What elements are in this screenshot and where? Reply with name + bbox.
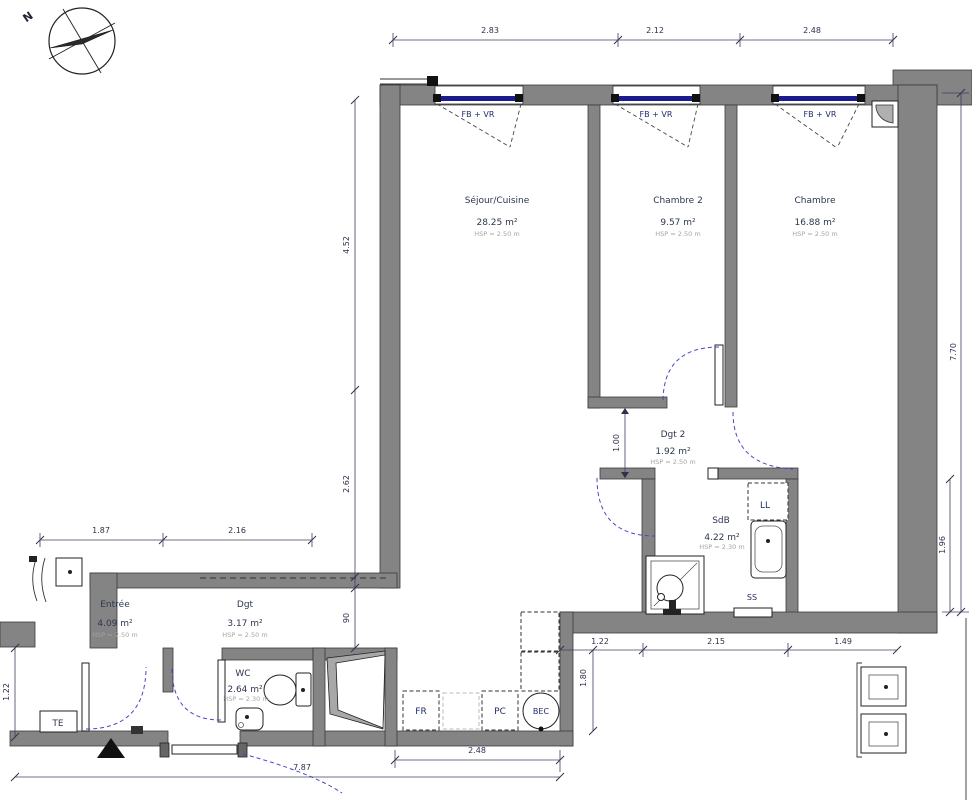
wall-corridor-bottom-left — [10, 731, 168, 746]
dimensions: 2.83 2.12 2.48 4.52 2.62 90 1.87 2.16 1.… — [2, 26, 969, 781]
door-arc-entrance — [243, 754, 342, 793]
shower-mixer — [669, 600, 676, 610]
wall-closet-left — [313, 648, 325, 746]
room-chambre2-name: Chambre 2 — [653, 196, 703, 206]
window-jamb — [611, 94, 619, 102]
room-wc-area: 2.64 m² — [227, 685, 263, 695]
wall-wc-left-jamb — [163, 648, 173, 692]
window-jamb — [433, 94, 441, 102]
towel-dryer — [734, 608, 772, 617]
dim-top-b: 2.12 — [646, 26, 664, 35]
kitchen-unit-box — [521, 612, 559, 651]
window-jamb — [771, 94, 779, 102]
toilet — [264, 673, 311, 706]
window-label: FB + VR — [462, 110, 495, 119]
dim-122-inner: 1.22 — [591, 637, 609, 646]
window-sejour — [435, 86, 523, 104]
dim-left-c: 90 — [342, 613, 351, 623]
door-leaf-entrance — [172, 745, 237, 754]
room-dgt-hsp: HSP = 2.50 m — [222, 631, 267, 639]
window-label: FB + VR — [640, 110, 673, 119]
room-sejour-hsp: HSP = 2.50 m — [474, 230, 519, 238]
wall-kitchen-right — [560, 612, 573, 746]
floor-plan: FB + VR FB + VR FB + VR — [0, 0, 972, 800]
dim-149: 1.49 — [834, 637, 852, 646]
room-dgt2-hsp: HSP = 2.50 m — [650, 458, 695, 466]
room-entree-name: Entrée — [100, 599, 130, 610]
wall-sejour-chambre2 — [588, 105, 600, 408]
windows: FB + VR FB + VR FB + VR — [380, 76, 898, 148]
window-jamb — [857, 94, 865, 102]
dim-100: 1.00 — [612, 434, 621, 452]
wall-left-stub — [0, 622, 35, 647]
walls — [0, 70, 972, 746]
door-leaf-chambre2 — [715, 345, 723, 405]
room-chambre-area: 16.88 m² — [794, 218, 835, 228]
dim-215: 2.15 — [707, 637, 725, 646]
door-leaf-entree-closet — [82, 663, 89, 731]
room-sdb-hsp: HSP = 2.30 m — [699, 543, 744, 551]
cooktop-label: PC — [494, 707, 506, 717]
window-label: FB + VR — [804, 110, 837, 119]
landing-fixture — [29, 556, 82, 602]
room-chambre2-area: 9.57 m² — [660, 218, 696, 228]
door-arc-chambre — [733, 412, 793, 469]
room-entree-hsp: HSP = 2.50 m — [92, 631, 137, 639]
dim-216: 2.16 — [228, 526, 246, 535]
window-chambre — [773, 86, 865, 104]
room-wc-name: WC — [235, 669, 250, 679]
floor-plan-svg: FB + VR FB + VR FB + VR — [0, 0, 972, 800]
window-jamb — [515, 94, 523, 102]
dim-left-a: 4.52 — [342, 236, 351, 254]
window-jamb — [692, 94, 700, 102]
entrance-jamb — [160, 743, 169, 757]
wall-corridor-bottom-right — [240, 731, 573, 746]
window-chambre2-glazing — [619, 96, 694, 101]
door-arc-chambre2 — [663, 347, 719, 402]
window-chambre-glazing — [779, 96, 859, 101]
fridge-label: FR — [415, 707, 426, 717]
sink-dot — [539, 727, 544, 732]
room-entree-area: 4.09 m² — [97, 619, 133, 629]
dim-180: 1.80 — [579, 669, 588, 687]
dim-196: 1.96 — [938, 536, 947, 554]
wall-wc-top — [222, 648, 313, 660]
wall-closet-right — [385, 648, 397, 746]
wall-chambre2-chambre — [725, 105, 737, 407]
door-leaf-wc — [218, 660, 225, 722]
compass: N — [20, 8, 115, 74]
room-dgt-area: 3.17 m² — [227, 619, 263, 629]
wall-sejour-left — [380, 85, 400, 588]
room-wc-hsp: HSP = 2.30 m — [223, 695, 268, 703]
door-arc-wc — [172, 668, 221, 720]
washing-machine-label: LL — [760, 501, 770, 511]
room-chambre2-hsp: HSP = 2.50 m — [655, 230, 700, 238]
room-dgt2-area: 1.92 m² — [655, 447, 691, 457]
room-sdb-area: 4.22 m² — [704, 533, 740, 543]
kitchen-units: FR PC BEC — [403, 612, 559, 732]
te-label: TE — [51, 719, 63, 729]
fixtures: LL SS TE — [29, 483, 966, 800]
wall-right — [898, 85, 937, 633]
balcony-rail-end — [427, 76, 438, 86]
neighbor-fixtures — [857, 618, 966, 800]
room-dgt-name: Dgt — [237, 600, 254, 610]
kitchen-middle-box — [443, 693, 479, 729]
sink-label: BEC — [533, 707, 550, 716]
room-chambre-hsp: HSP = 2.50 m — [792, 230, 837, 238]
window-chambre2 — [613, 86, 700, 104]
room-sdb-name: SdB — [712, 516, 730, 526]
dim-top-c: 2.48 — [803, 26, 821, 35]
dim-top-a: 2.83 — [481, 26, 499, 35]
entrance-jamb-block — [131, 726, 143, 734]
room-sejour-name: Séjour/Cuisine — [465, 195, 530, 206]
room-dgt2-name: Dgt 2 — [661, 430, 686, 440]
dim-left-b: 2.62 — [342, 475, 351, 493]
wall-sdb-top-right — [713, 468, 798, 479]
kitchen-unit-box — [521, 652, 559, 691]
room-sejour-area: 28.25 m² — [476, 218, 517, 228]
wall-chambre2-bottom — [588, 397, 667, 408]
towel-dryer-label: SS — [747, 593, 757, 602]
door-leaf-sdb — [708, 468, 718, 479]
compass-needle — [50, 30, 113, 48]
washbasin — [751, 521, 786, 578]
dim-770: 7.70 — [949, 343, 958, 361]
closet-trapezoid — [327, 651, 385, 729]
dim-187: 1.87 — [92, 526, 110, 535]
shower — [646, 556, 704, 615]
dim-248-bottom: 2.48 — [468, 746, 486, 755]
wc-basin — [236, 708, 263, 730]
door-arc-entree-closet — [86, 667, 146, 729]
window-sejour-glazing — [441, 96, 517, 101]
north-label: N — [20, 9, 35, 25]
dim-787: 7.87 — [293, 763, 311, 772]
room-chambre-name: Chambre — [794, 196, 835, 206]
dim-122-left: 1.22 — [2, 683, 11, 701]
